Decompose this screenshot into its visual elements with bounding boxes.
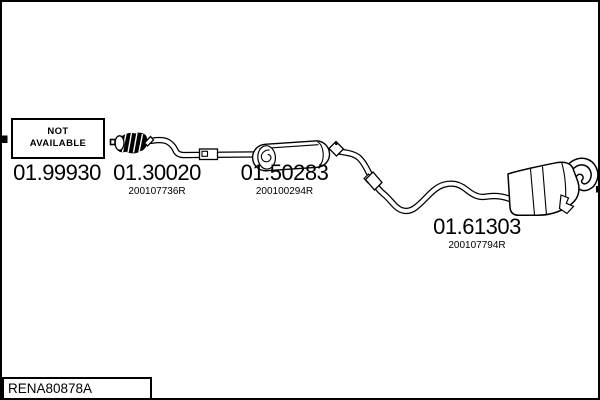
drawing-code: RENA80878A [8,381,92,396]
part-entry-flex-pipe: 01.30020 200107736R [110,162,204,197]
part-code: 01.61303 [430,216,524,238]
part-entry-rear-muffler: 01.61303 200107794R [430,216,524,251]
drawing-code-box: RENA80878A [2,377,152,400]
part-entry-front-pipe: 01.99930 [10,162,104,184]
exhaust-system-drawing [2,2,600,400]
flex-coupling-drawing [115,133,154,154]
not-available-line1: NOT [47,127,68,138]
right-border-marker [596,186,600,193]
part-code: 01.50283 [237,162,332,184]
part-oem-ref: 200107794R [430,240,524,251]
part-oem-ref: 200100294R [237,186,332,197]
not-available-box: NOT AVAILABLE [11,118,105,159]
part-code: 01.30020 [110,162,204,184]
rear-pipe-drawing [335,151,510,211]
part-code: 01.99930 [10,162,104,184]
not-available-line2: AVAILABLE [30,139,87,150]
rear-muffler-drawing [508,162,579,215]
part-oem-ref: 200107736R [110,186,204,197]
left-border-marker [2,136,8,144]
front-connection-marker [111,140,116,145]
pipe-coupling-drawing [200,149,218,160]
part-entry-center-muffler: 01.50283 200100294R [237,162,332,197]
exhaust-parts-diagram-page: NOT AVAILABLE 01.99930 01.30020 20010773… [0,0,600,400]
